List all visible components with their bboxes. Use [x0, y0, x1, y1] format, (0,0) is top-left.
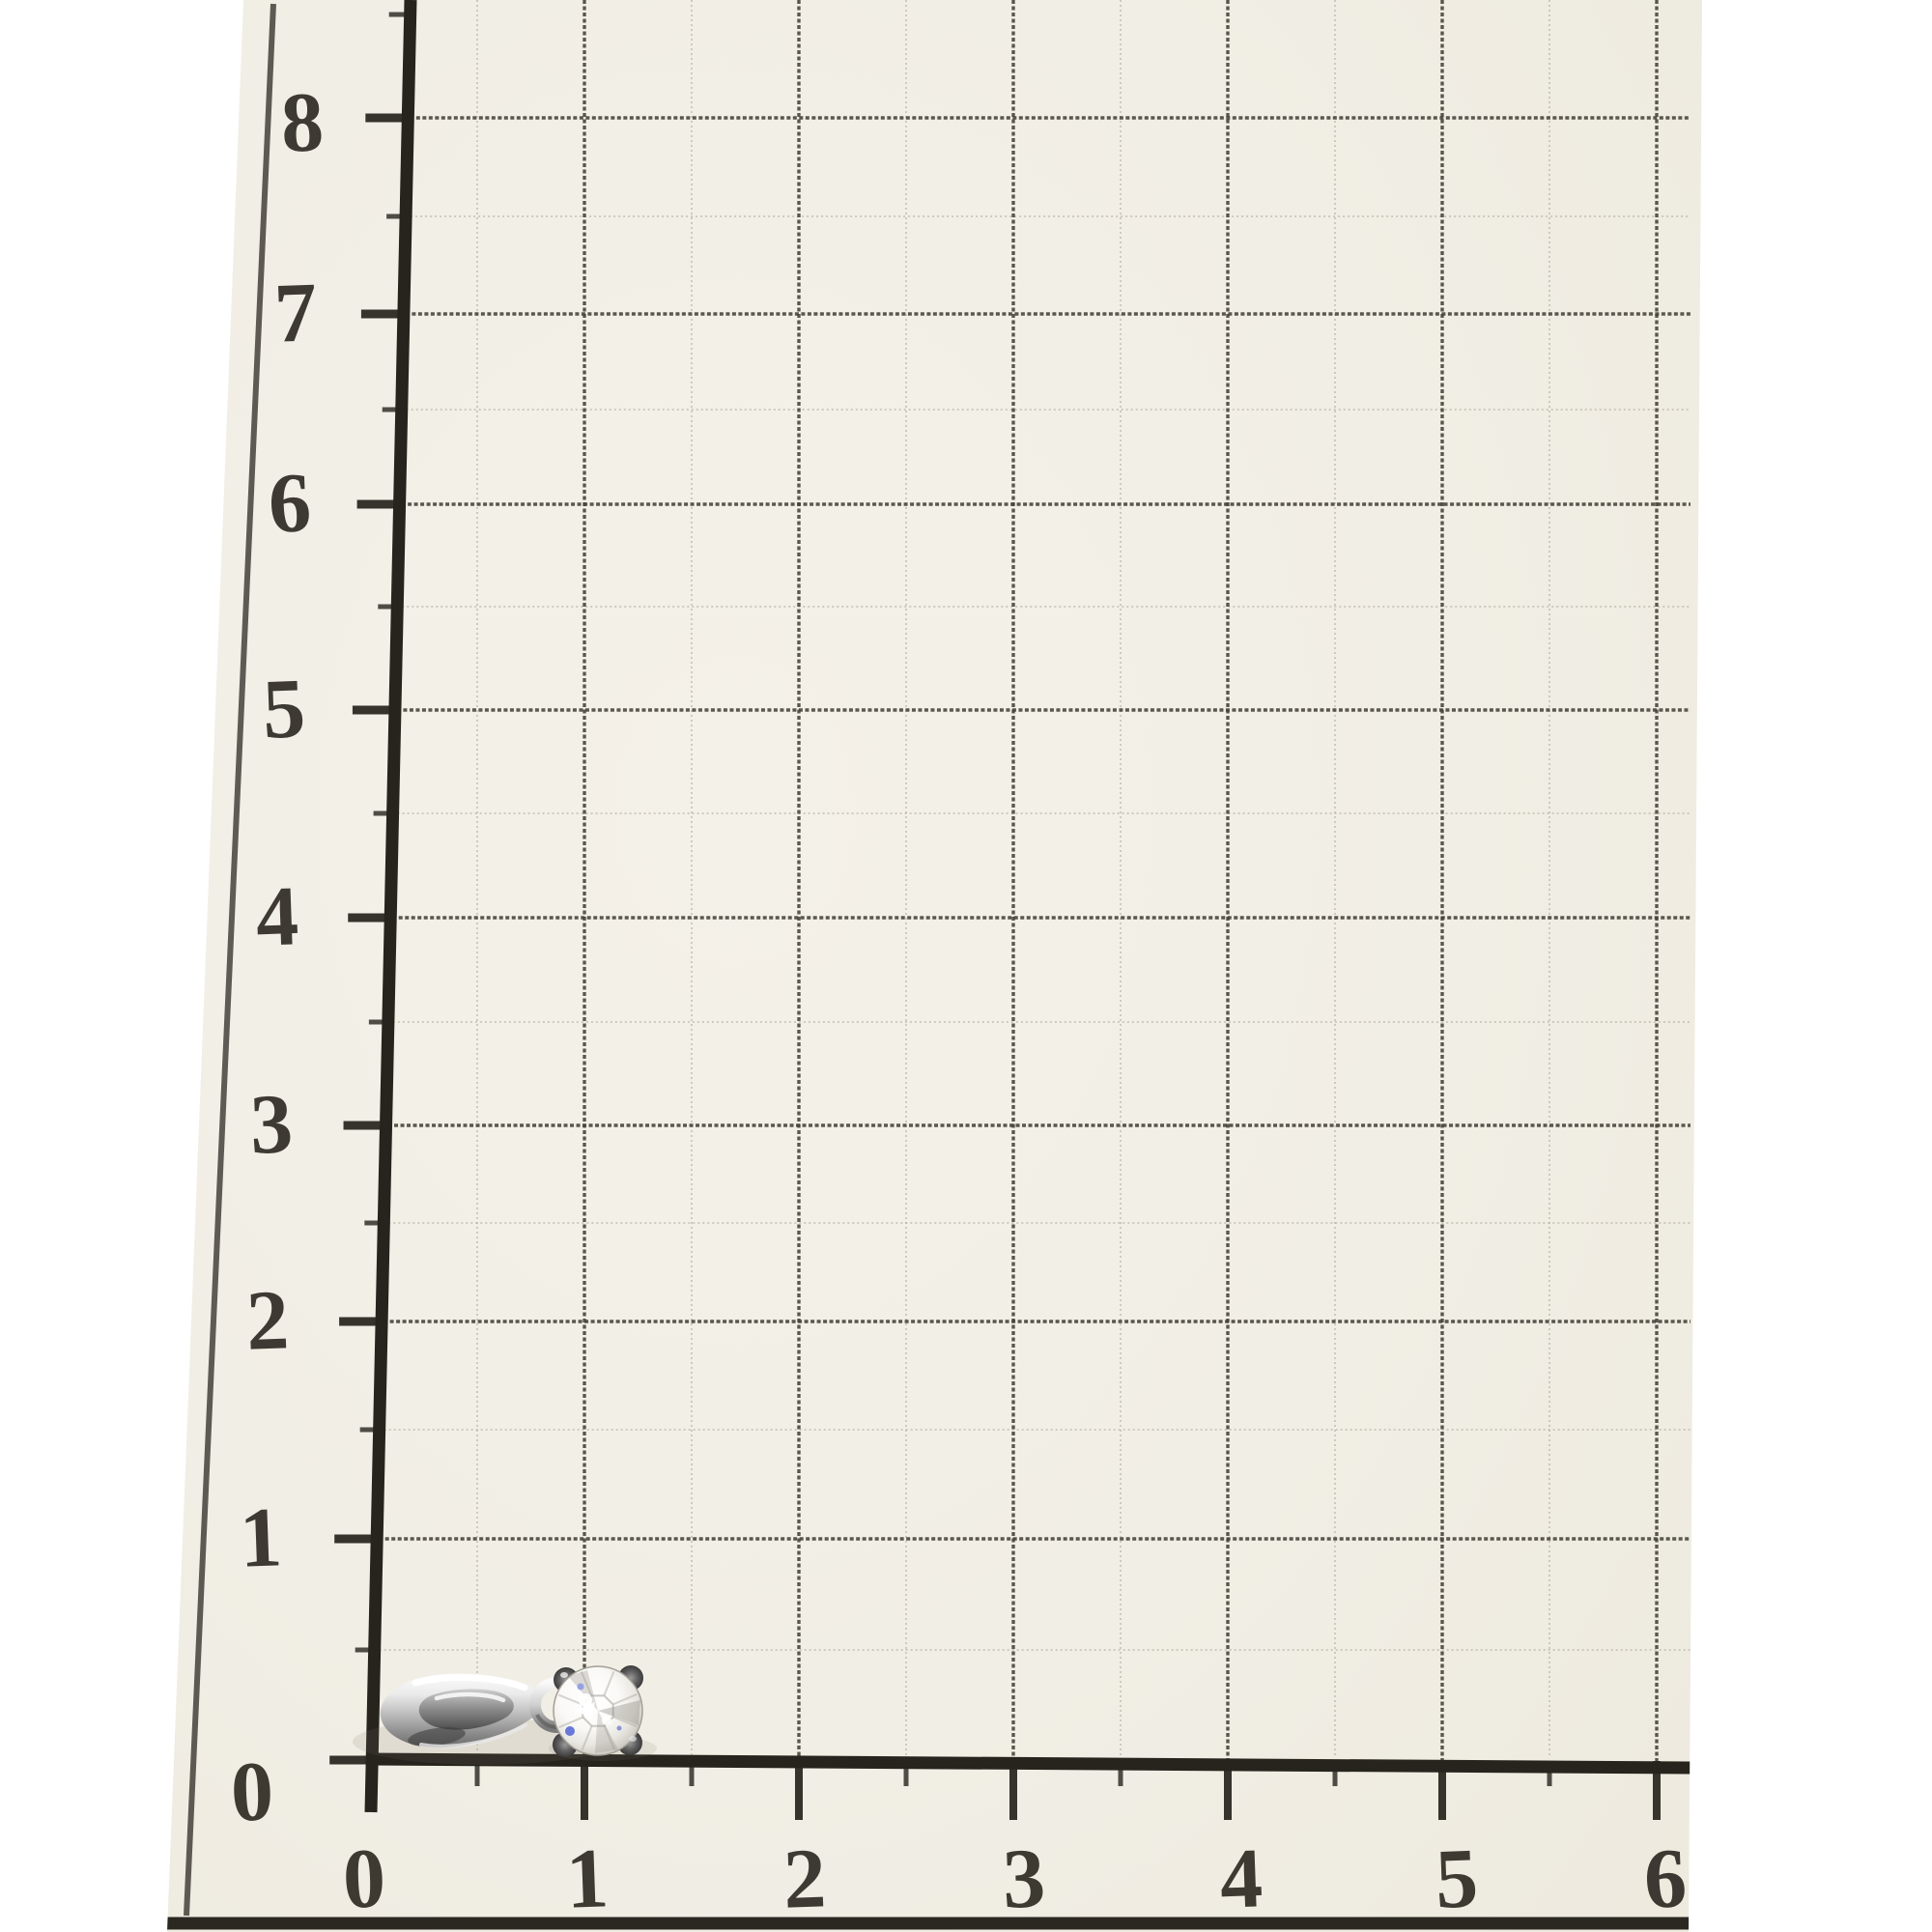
x-axis-label: 6: [1642, 1836, 1688, 1922]
y-axis-label: 2: [244, 1278, 290, 1364]
y-axis-label: 6: [267, 461, 312, 547]
x-axis-label: 3: [1001, 1836, 1046, 1922]
y-axis-label: 7: [272, 270, 318, 356]
y-axis-label: 8: [279, 80, 325, 166]
x-axis-label: 5: [1434, 1836, 1479, 1922]
x-axis-label: 2: [781, 1836, 827, 1922]
x-axis-label: 1: [564, 1836, 610, 1922]
x-axis-label: 4: [1218, 1836, 1264, 1922]
photo-jewelry-on-ruler: 8 7 6 5 4 3 2 1 0 0 1 2 3 4 5 6: [0, 0, 1932, 1932]
pendant-stone-setting: [553, 1665, 643, 1757]
y-axis-label: 4: [254, 874, 299, 960]
y-axis-label: 3: [248, 1082, 294, 1168]
ruler-grid: [162, 0, 1690, 1923]
x-axis-label: 0: [341, 1836, 386, 1922]
y-axis-label: 1: [238, 1495, 283, 1581]
y-axis-label: 5: [261, 667, 306, 753]
y-axis-label: 0: [229, 1749, 274, 1835]
diamond-pendant: [353, 1665, 657, 1765]
